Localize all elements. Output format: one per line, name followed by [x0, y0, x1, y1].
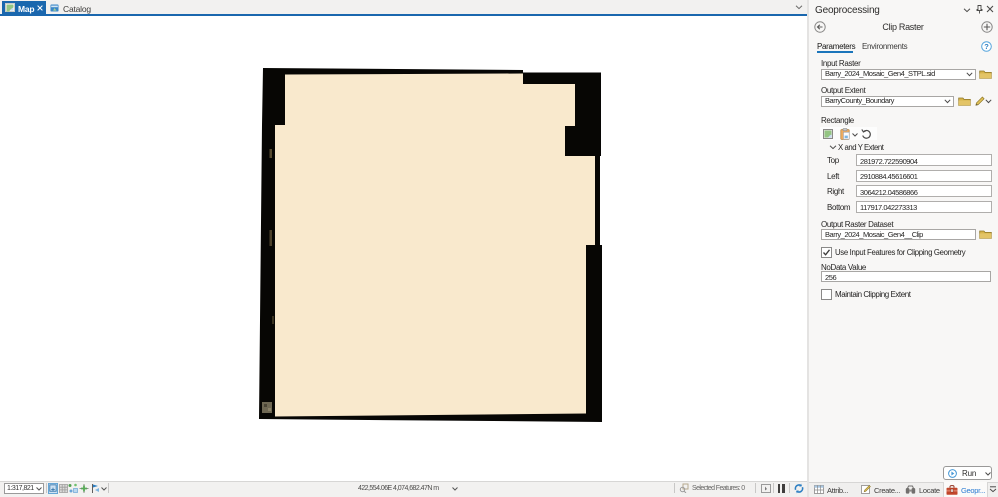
svg-text:?: ? [984, 42, 989, 51]
